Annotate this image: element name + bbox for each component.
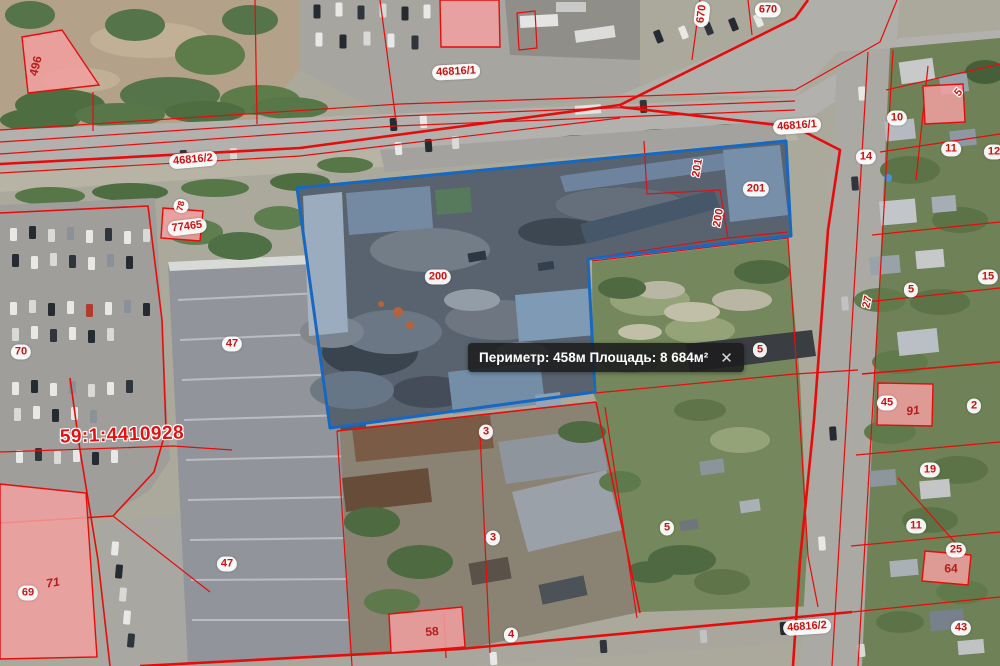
measurement-tooltip: Периметр: 458м Площадь: 8 684м² ✕ xyxy=(468,343,744,372)
cadastral-map-app: 49646816/246816/167067046816/17877465704… xyxy=(0,0,1000,666)
measurement-text: Периметр: 458м Площадь: 8 684м² xyxy=(479,350,708,365)
satellite-map[interactable] xyxy=(0,0,1000,666)
tooltip-close-icon[interactable]: ✕ xyxy=(720,349,733,367)
